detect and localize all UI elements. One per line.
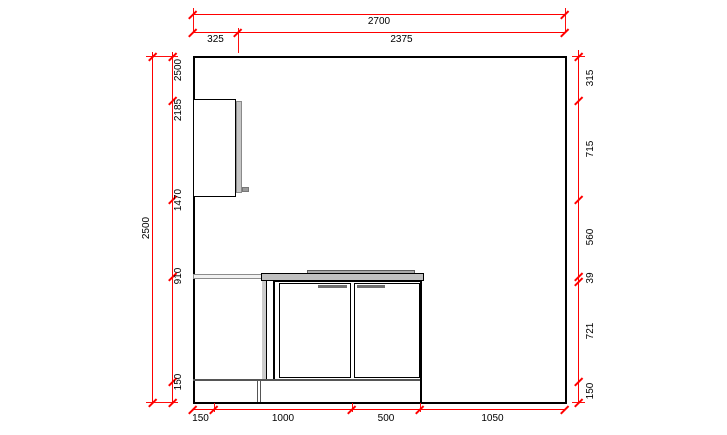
filler-panel — [266, 281, 274, 380]
dim-label-left-overall: 2500 — [140, 211, 152, 245]
dim-label-bottom-seg-3: 500 — [352, 413, 420, 425]
wall-cabinet-door-edge — [236, 101, 242, 193]
door-handle-left — [318, 285, 347, 288]
dim-label-right-seg-2: 715 — [584, 132, 596, 166]
dim-label-top-seg-2: 2375 — [238, 34, 565, 46]
dim-label-right-seg-3: 560 — [584, 220, 596, 254]
base-cabinet-door-right — [354, 283, 420, 378]
plinth-top-line — [193, 379, 421, 381]
dim-label-right-seg-1: 315 — [584, 61, 596, 95]
dim-label-bottom-seg-2: 1000 — [214, 413, 352, 425]
base-cabinet-right-side — [420, 281, 422, 402]
dim-label-left-run-4: 910 — [172, 259, 184, 293]
dim-line-right — [578, 50, 579, 404]
dim-label-right-seg-5: 721 — [584, 314, 596, 348]
dim-label-top-overall: 2700 — [193, 16, 565, 28]
door-handle-right — [357, 285, 385, 288]
wall-cabinet — [193, 99, 236, 197]
base-cabinet-door-left — [279, 283, 351, 378]
elevation-canvas: 2700 325 2375 150 1000 500 1050 2500 250… — [0, 0, 727, 435]
dim-label-left-run-2: 2185 — [172, 93, 184, 127]
dim-label-right-seg-4: 39 — [584, 261, 596, 295]
dim-line-top-segments — [193, 32, 565, 33]
wall-cabinet-handle — [242, 187, 249, 192]
dim-label-left-run-3: 1470 — [172, 183, 184, 217]
dim-line-top-overall — [193, 14, 565, 15]
dim-label-top-seg-1: 325 — [193, 34, 238, 46]
dim-label-left-run-5: 150 — [172, 365, 184, 399]
plinth-left-edge — [257, 381, 261, 402]
dim-line-left-overall — [152, 52, 153, 404]
dim-label-right-seg-6: 150 — [584, 374, 596, 408]
dim-label-bottom-seg-4: 1050 — [420, 413, 565, 425]
countertop-main — [261, 273, 424, 281]
dim-label-left-run-1: 2500 — [172, 53, 184, 87]
dim-line-bottom — [193, 409, 565, 410]
